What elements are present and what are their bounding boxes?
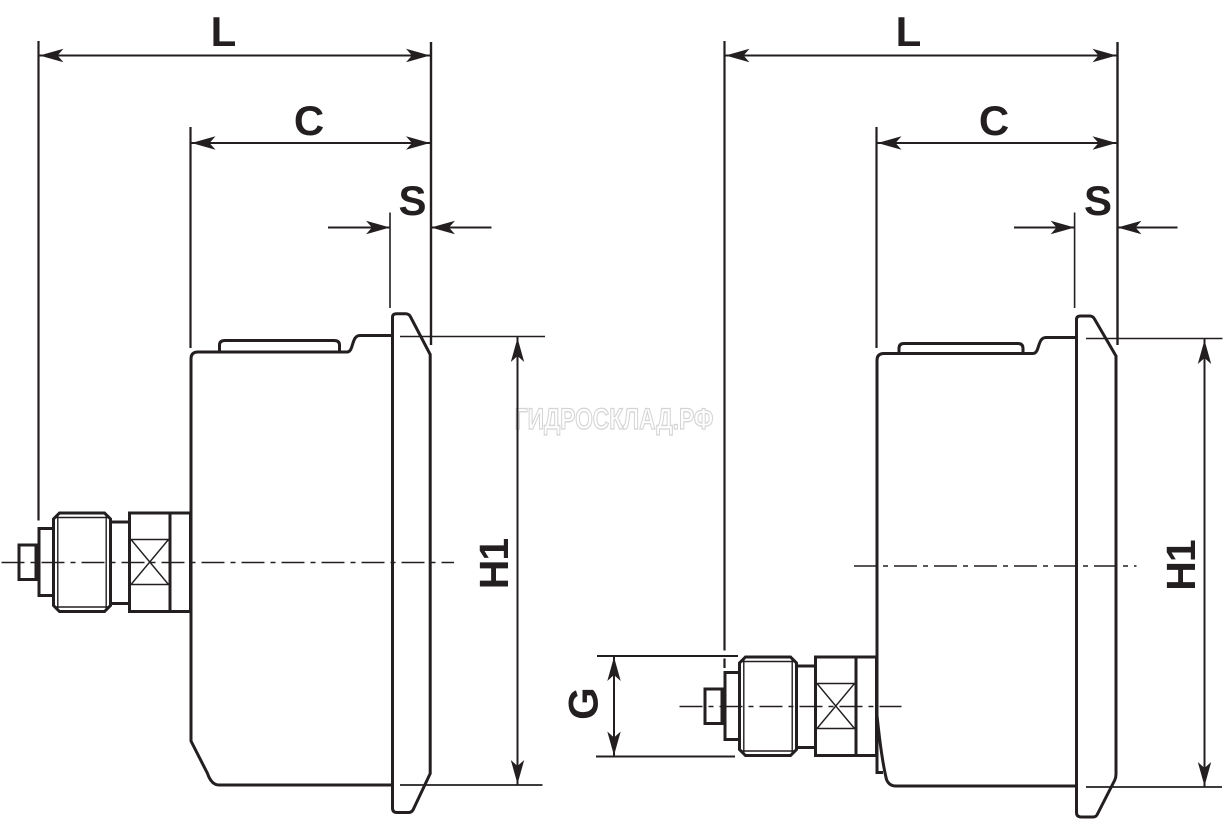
svg-text:S: S <box>1084 177 1112 224</box>
svg-text:H1: H1 <box>471 539 517 590</box>
svg-text:H1: H1 <box>1158 540 1204 591</box>
svg-text:C: C <box>294 97 324 144</box>
svg-text:C: C <box>979 97 1009 144</box>
svg-text:G: G <box>560 687 607 720</box>
svg-text:ГИДРОСКЛАД.РФ: ГИДРОСКЛАД.РФ <box>515 402 714 436</box>
svg-text:L: L <box>896 8 922 55</box>
svg-text:L: L <box>211 8 237 55</box>
svg-text:S: S <box>398 177 426 224</box>
